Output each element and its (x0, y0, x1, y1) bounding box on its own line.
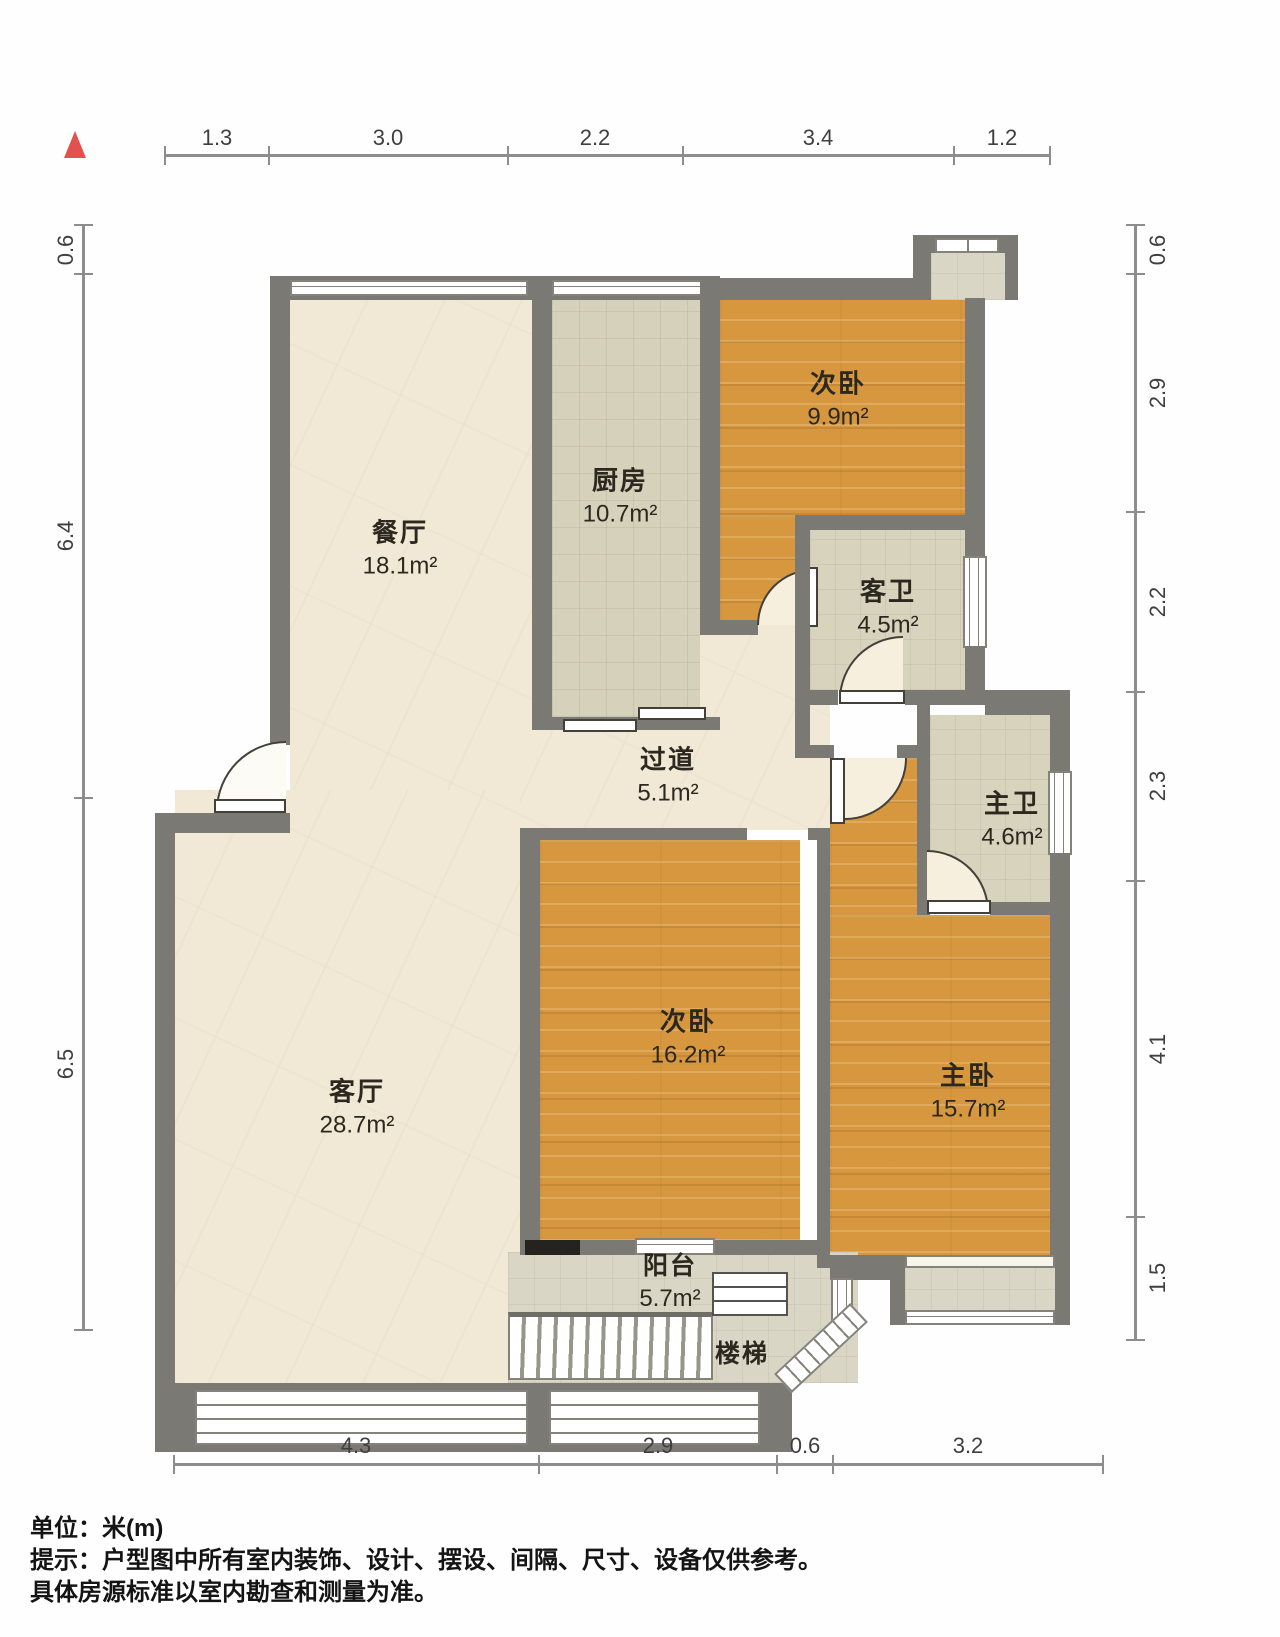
room-area: 16.2m² (651, 1039, 726, 1070)
note-tip-line1: 提示：户型图中所有室内装饰、设计、摆设、间隔、尺寸、设备仅供参考。 (30, 1540, 822, 1575)
room-area: 4.5m² (857, 609, 918, 640)
tick (832, 1455, 834, 1474)
room-name: 主卫 (981, 788, 1042, 822)
sliding-door-panel (638, 707, 706, 720)
dim-label: 2.3 (1145, 771, 1171, 802)
dim-label: 2.2 (1145, 587, 1171, 618)
tick (268, 146, 270, 165)
room-area: 18.1m² (363, 550, 438, 581)
tick (507, 146, 509, 165)
tick (1126, 691, 1145, 693)
room-name: 主卧 (931, 1060, 1006, 1094)
dim-label: 3.0 (373, 125, 404, 151)
tick (1126, 1339, 1145, 1341)
room-label-dining: 餐厅 18.1m² (363, 517, 438, 582)
tick (1126, 224, 1145, 226)
room-area: 15.7m² (931, 1093, 1006, 1124)
wall (715, 278, 915, 300)
door-leaf (927, 900, 991, 914)
balcony-railing (712, 1272, 788, 1316)
wall (1050, 853, 1070, 1268)
tick (74, 1329, 93, 1331)
window-bay (935, 238, 999, 253)
room-area: 28.7m² (320, 1109, 395, 1140)
wall (795, 515, 810, 758)
wall (1050, 715, 1070, 773)
room-area: 10.7m² (583, 498, 658, 529)
dimension-line-top (165, 154, 1051, 157)
window (963, 556, 987, 648)
window-rear-bay (905, 1310, 1055, 1325)
tick (1126, 880, 1145, 882)
wall (810, 745, 834, 758)
dim-label: 3.4 (803, 125, 834, 151)
dim-label: 4.3 (341, 1433, 372, 1459)
wall (795, 515, 985, 530)
tick (1126, 511, 1145, 513)
dim-label: 2.9 (1145, 378, 1171, 409)
dim-label: 1.2 (987, 125, 1018, 151)
wall (155, 813, 290, 833)
window-sill (905, 1255, 1055, 1268)
room-area: 4.6m² (981, 821, 1042, 852)
room-name: 客卫 (857, 576, 918, 610)
stairs (508, 1312, 713, 1380)
dim-label: 2.2 (580, 125, 611, 151)
tick (1126, 273, 1145, 275)
door-leaf (839, 690, 905, 704)
dim-label: 6.5 (53, 1049, 79, 1080)
tick (74, 224, 93, 226)
room-label-bedroom-mid: 次卧 16.2m² (651, 1006, 726, 1071)
floor-bay (931, 253, 1005, 300)
wall (155, 813, 175, 1390)
tick (173, 1455, 175, 1474)
north-arrow-icon (64, 131, 86, 158)
tick (74, 797, 93, 799)
wall (700, 278, 720, 630)
room-name: 厨房 (583, 465, 658, 499)
wall (520, 828, 747, 840)
room-label-hallway: 过道 5.1m² (637, 744, 698, 809)
dimension-line-left (82, 225, 85, 1330)
window (1048, 771, 1072, 855)
room-name: 楼梯 (715, 1338, 769, 1371)
room-name: 次卧 (651, 1006, 726, 1040)
room-area: 9.9m² (807, 401, 868, 432)
dim-label: 1.5 (1145, 1263, 1171, 1294)
room-label-master-bath: 主卫 4.6m² (981, 788, 1042, 853)
room-label-master: 主卧 15.7m² (931, 1060, 1006, 1125)
wall (965, 646, 985, 690)
dim-label: 2.9 (643, 1433, 674, 1459)
room-label-balcony: 阳台 5.7m² (639, 1250, 700, 1314)
tick (164, 146, 166, 165)
dim-label: 3.2 (953, 1433, 984, 1459)
wall (1055, 1255, 1070, 1325)
room-label-kitchen: 厨房 10.7m² (583, 465, 658, 530)
room-name: 过道 (637, 744, 698, 778)
dimension-line-right (1134, 225, 1137, 1340)
window (290, 280, 528, 296)
dim-label: 0.6 (1145, 235, 1171, 266)
tick (1102, 1455, 1104, 1474)
wall (520, 828, 540, 1255)
tick (74, 273, 93, 275)
dim-label: 0.6 (53, 235, 79, 266)
dim-label: 1.3 (202, 125, 233, 151)
tick (682, 146, 684, 165)
wall (897, 745, 917, 758)
wall-dark-insert (525, 1240, 580, 1255)
room-name: 阳台 (639, 1250, 700, 1283)
room-name: 客厅 (320, 1076, 395, 1110)
tick (538, 1455, 540, 1474)
floorplan-canvas: 餐厅 18.1m² 厨房 10.7m² 次卧 9.9m² 客卫 4.5m² 过道… (0, 0, 1280, 1637)
room-label-living: 客厅 28.7m² (320, 1076, 395, 1141)
wall (990, 902, 1050, 915)
wall (985, 690, 1070, 715)
note-tip-line2: 具体房源标准以室内勘查和测量为准。 (30, 1572, 438, 1607)
window (552, 280, 715, 296)
room-name: 次卧 (807, 368, 868, 402)
note-unit: 单位：米(m) (30, 1508, 163, 1543)
wall (810, 690, 838, 705)
tick (953, 146, 955, 165)
wall (817, 828, 830, 1260)
room-label-bedroom-top: 次卧 9.9m² (807, 368, 868, 433)
wall (532, 298, 552, 730)
room-area: 5.1m² (637, 777, 698, 808)
wall (270, 278, 290, 745)
room-name: 餐厅 (363, 517, 438, 551)
door-leaf (830, 758, 845, 824)
sliding-door-panel (563, 719, 637, 732)
room-label-guest-bath: 客卫 4.5m² (857, 576, 918, 641)
room-label-stairs: 楼梯 (715, 1338, 769, 1371)
dim-label: 4.1 (1145, 1034, 1171, 1065)
dim-label: 6.4 (53, 521, 79, 552)
door-leaf-entry (214, 799, 286, 813)
floor-rear-bay (905, 1268, 1055, 1316)
tick (776, 1455, 778, 1474)
dim-label: 0.6 (790, 1433, 821, 1459)
dimension-line-bottom (174, 1463, 1104, 1466)
room-area: 5.7m² (639, 1283, 700, 1314)
tick (1126, 1216, 1145, 1218)
wall (700, 620, 758, 635)
tick (1049, 146, 1051, 165)
